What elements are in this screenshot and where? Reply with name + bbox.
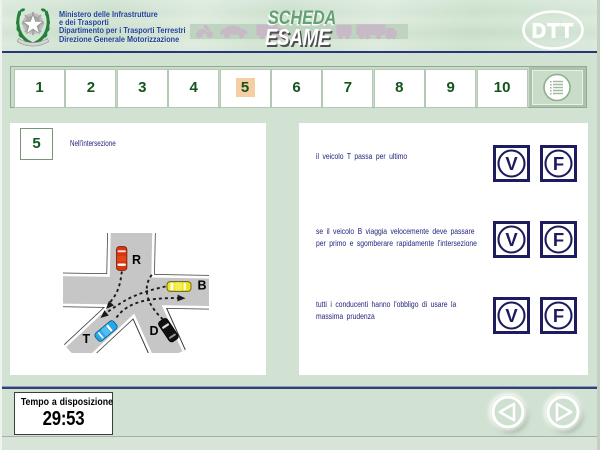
svg-text:F: F [553,229,564,250]
svg-text:D: D [150,324,159,338]
svg-text:DTT: DTT [532,21,574,43]
svg-text:B: B [198,279,207,293]
svg-text:V: V [505,305,518,326]
svg-text:F: F [553,153,564,174]
svg-text:R: R [132,253,141,267]
svg-text:V: V [505,229,518,250]
svg-text:T: T [83,332,91,346]
svg-text:F: F [553,305,564,326]
svg-text:V: V [505,153,518,174]
